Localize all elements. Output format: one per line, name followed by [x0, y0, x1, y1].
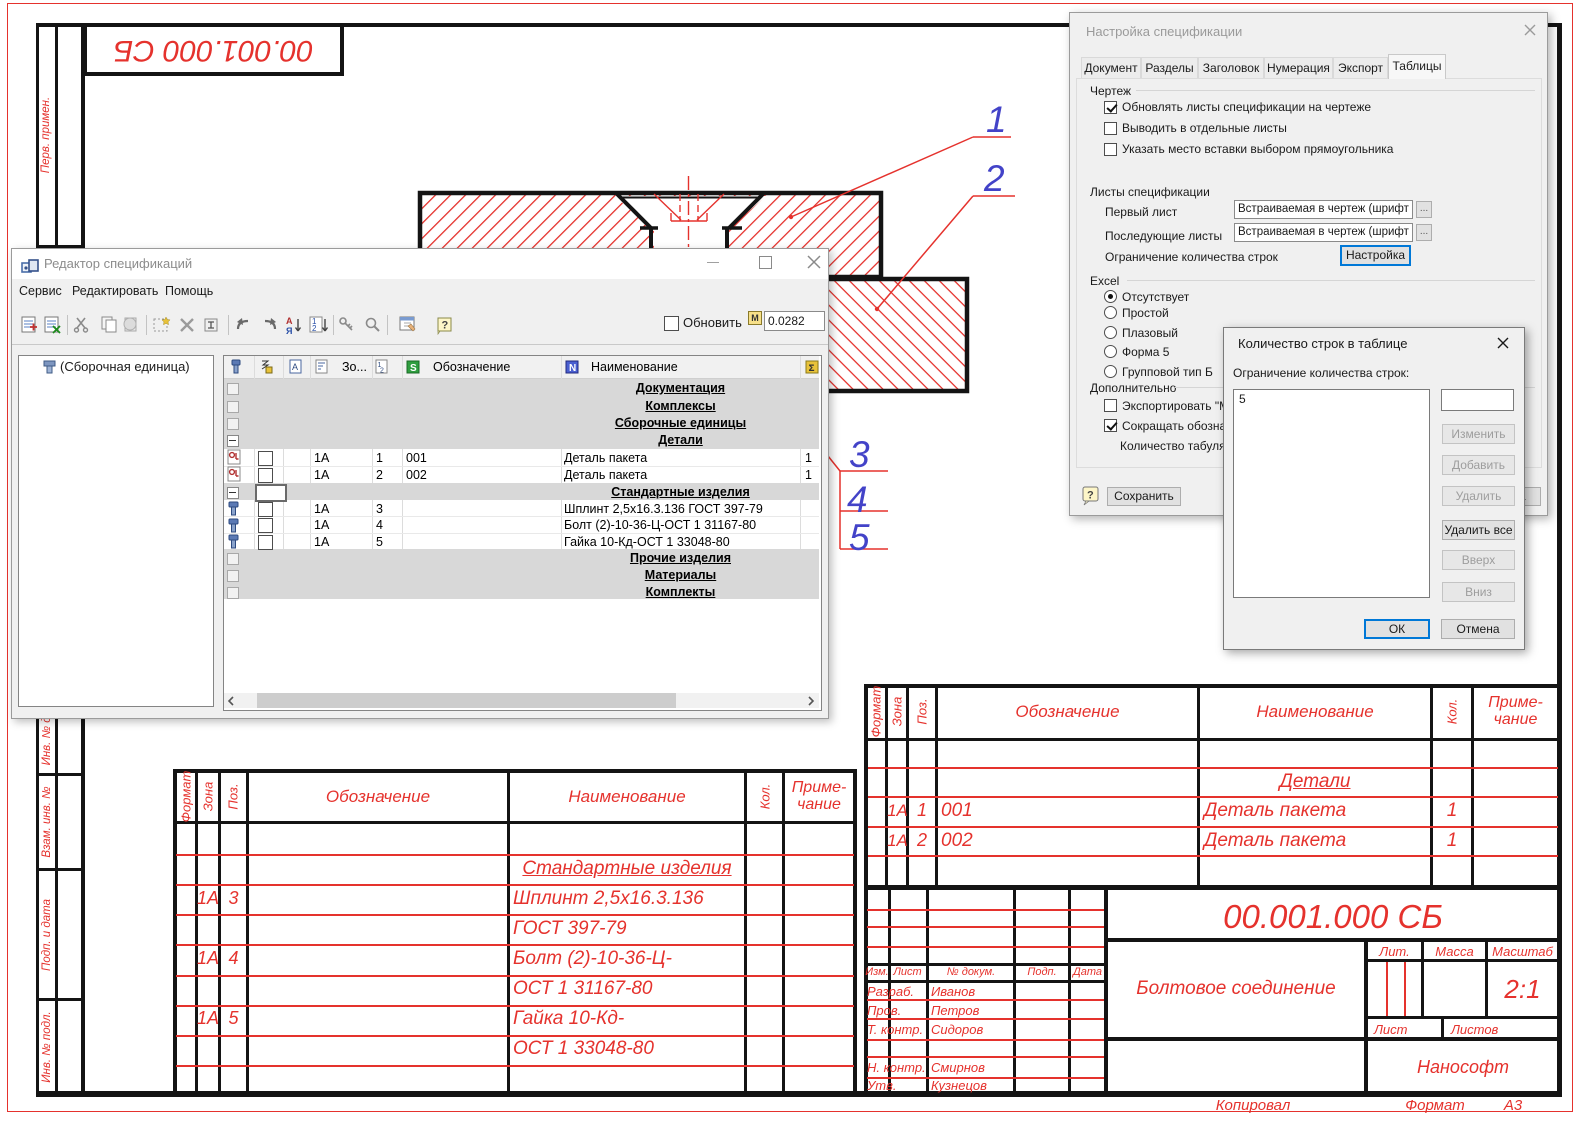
svg-text:2: 2: [983, 158, 1005, 199]
svg-text:?: ?: [1087, 490, 1094, 502]
svg-text:S: S: [410, 363, 417, 374]
svg-text:Я: Я: [286, 326, 292, 336]
svg-text:2: 2: [312, 324, 317, 333]
svg-text:Σ: Σ: [809, 364, 815, 375]
svg-text:2: 2: [380, 368, 384, 375]
svg-text:А: А: [286, 316, 293, 326]
svg-text:N: N: [569, 363, 576, 374]
svg-text:3: 3: [849, 434, 870, 475]
svg-text:A: A: [292, 362, 298, 372]
svg-text:4: 4: [847, 479, 868, 520]
svg-text:?: ?: [442, 320, 449, 332]
svg-text:1: 1: [986, 99, 1007, 140]
svg-text:5: 5: [849, 517, 870, 558]
